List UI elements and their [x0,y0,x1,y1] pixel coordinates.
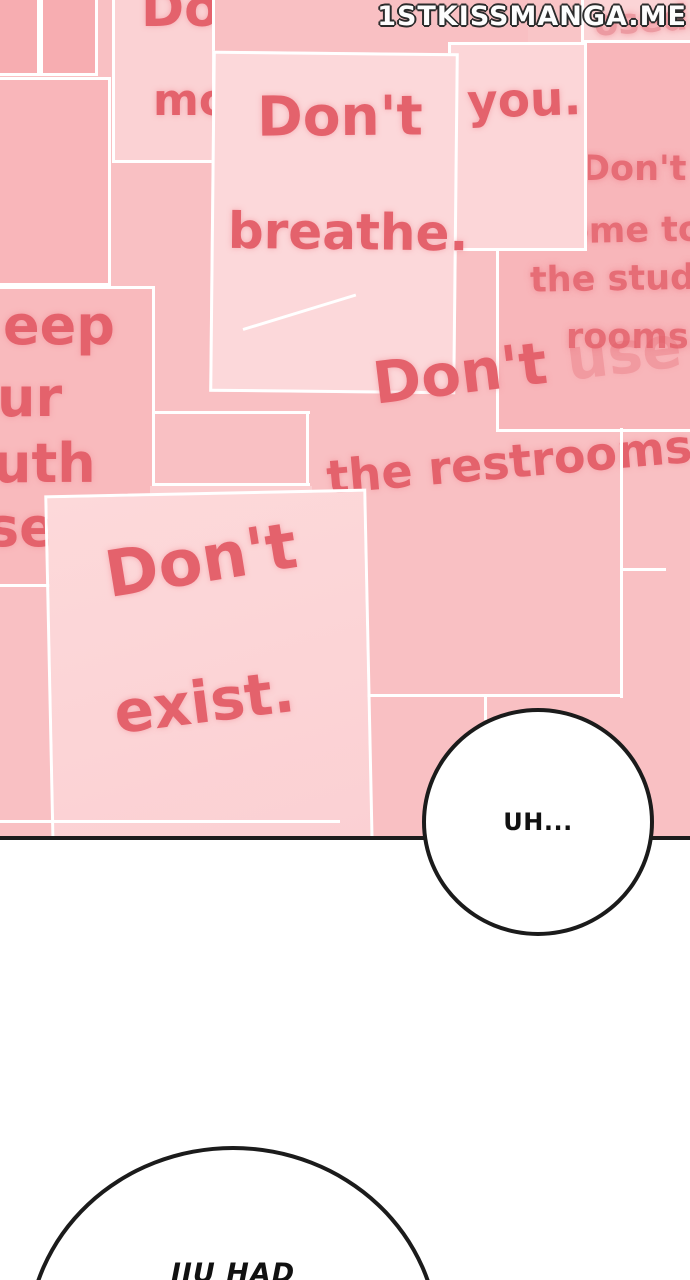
note-text: ur [0,371,62,425]
note-text: mo [153,79,215,123]
note-text: uth [0,437,96,491]
site-watermark: 1STKISSMANGA.ME [377,1,687,32]
note-edge-line [0,820,340,823]
sticky-note [0,77,111,286]
note-edge-line [152,411,310,414]
speech-text: UH... [503,808,572,836]
manga-page: eep ur uth sed. osed. Don't come to the … [0,0,690,1280]
sticky-note [0,0,40,76]
speech-bubble-jiu: JIU HAD [26,1146,440,1280]
note-text: eep [3,299,115,353]
note-text: Don't [257,88,423,144]
sticky-note-move: Do mo [112,0,215,163]
note-text: Don't [101,514,302,608]
note-edge-line [306,413,309,490]
note-text: Don't [588,152,686,187]
note-text-clip: Don't [588,148,690,204]
note-edge-line [352,694,622,697]
note-text: exist. [111,662,298,742]
sticky-note-exist: Don't exist. [44,489,373,840]
speech-bubble-uh: UH... [422,708,654,936]
note-text: you. [466,75,582,126]
wall-text-faded: use [563,312,686,394]
note-edge-line [484,694,487,720]
wall-text-restrooms-2: the restrooms. [325,421,690,500]
note-text: the study [530,260,690,298]
note-text: Do [141,0,215,35]
note-edge-line [620,568,666,571]
sticky-note [40,0,98,76]
sticky-note-wall-panel: eep ur uth sed. osed. Don't come to the … [0,0,690,840]
note-edge-line [620,428,623,698]
note-text: breathe. [228,206,469,259]
speech-text: JIU HAD [30,1258,436,1280]
